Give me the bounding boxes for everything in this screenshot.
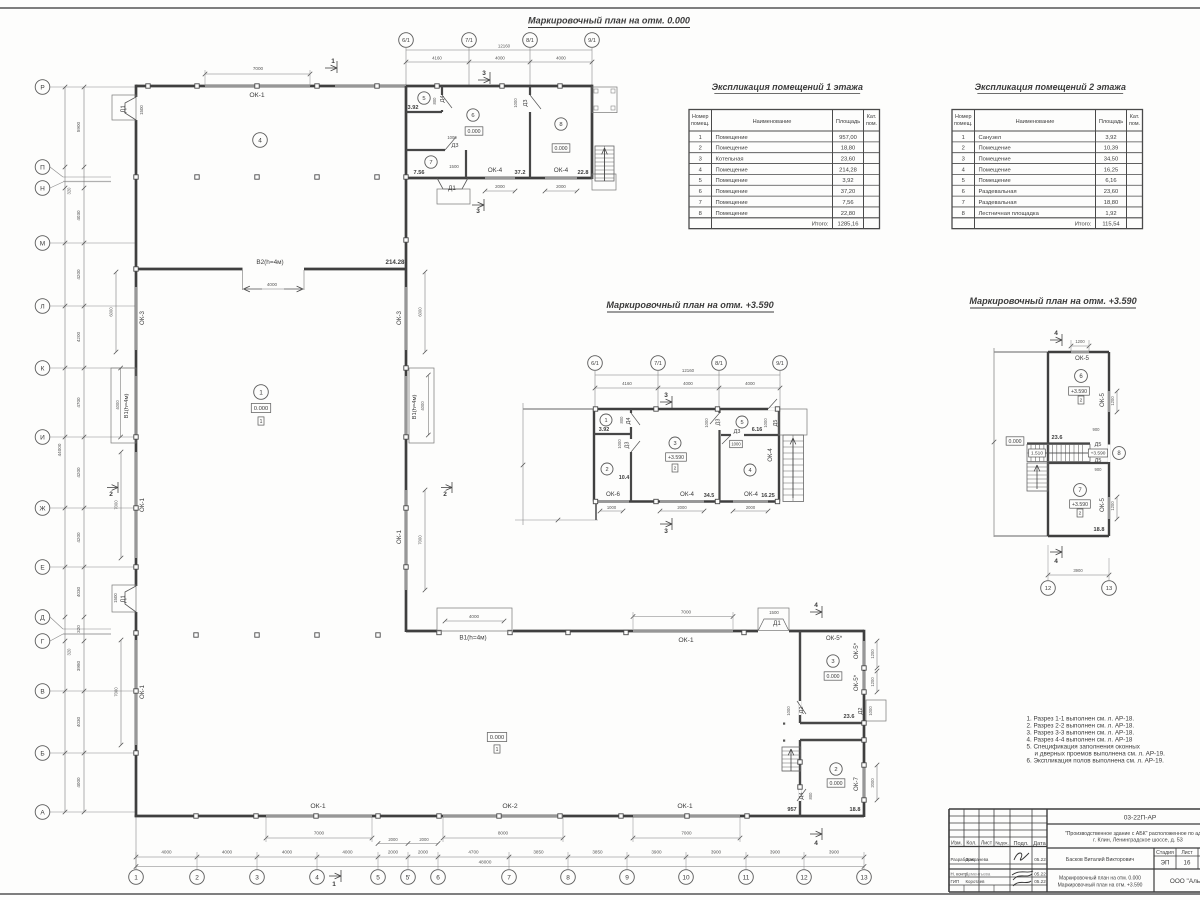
svg-text:1000: 1000 — [731, 442, 741, 447]
svg-text:1000: 1000 — [704, 418, 709, 428]
svg-text:Г: Г — [41, 638, 45, 645]
svg-text:Д1: Д1 — [120, 105, 127, 113]
svg-text:2000: 2000 — [870, 778, 875, 788]
svg-text:И: И — [40, 434, 45, 441]
svg-text:7000: 7000 — [253, 66, 264, 71]
svg-text:В1(h=4м): В1(h=4м) — [124, 394, 130, 419]
svg-text:0.000: 0.000 — [468, 129, 481, 135]
svg-text:Д5: Д5 — [1095, 458, 1102, 464]
svg-text:пом.: пом. — [866, 121, 877, 127]
svg-text:3850: 3850 — [592, 850, 603, 855]
svg-text:ОК-5*: ОК-5* — [853, 674, 860, 691]
svg-text:ООО "Аль: ООО "Аль — [1170, 878, 1200, 885]
svg-text:4000: 4000 — [495, 56, 505, 61]
svg-text:4: 4 — [1054, 558, 1058, 565]
svg-text:6,16: 6,16 — [1105, 178, 1116, 184]
svg-text:34,50: 34,50 — [1104, 157, 1119, 163]
svg-text:ОК-5*: ОК-5* — [826, 635, 843, 642]
svg-text:помещ.: помещ. — [691, 121, 710, 127]
svg-text:4200: 4200 — [76, 467, 81, 478]
svg-text:ОК-5*: ОК-5* — [853, 642, 860, 659]
svg-text:5: 5 — [962, 178, 965, 184]
svg-text:5: 5 — [740, 420, 743, 426]
svg-text:Дожранева: Дожранева — [966, 857, 989, 862]
svg-text:ОК-4: ОК-4 — [680, 491, 694, 498]
svg-text:5: 5 — [422, 96, 425, 102]
svg-text:6000: 6000 — [109, 307, 114, 317]
svg-text:ОК-1: ОК-1 — [678, 637, 694, 644]
svg-text:5900: 5900 — [76, 121, 81, 132]
svg-text:8: 8 — [699, 211, 702, 217]
svg-text:ОК-4: ОК-4 — [554, 167, 569, 174]
svg-text:4700: 4700 — [76, 397, 81, 408]
svg-text:Д1: Д1 — [120, 595, 127, 603]
svg-text:11: 11 — [743, 874, 750, 881]
svg-text:Маркировочный план на отм. +3.: Маркировочный план на отм. +3.590 — [606, 300, 773, 310]
svg-text:13: 13 — [860, 874, 868, 881]
svg-text:Лист: Лист — [981, 841, 993, 847]
svg-text:3: 3 — [664, 392, 668, 399]
svg-text:1500: 1500 — [113, 593, 118, 603]
svg-text:8: 8 — [962, 211, 965, 217]
svg-text:2: 2 — [605, 467, 608, 473]
svg-text:10,39: 10,39 — [1104, 146, 1119, 152]
svg-text:Итого:: Итого: — [812, 222, 829, 228]
svg-text:4000: 4000 — [282, 850, 293, 855]
svg-text:0.000: 0.000 — [827, 674, 840, 680]
svg-text:4000: 4000 — [76, 777, 81, 788]
svg-text:0.000: 0.000 — [830, 781, 843, 787]
svg-text:18,80: 18,80 — [1104, 200, 1119, 206]
svg-text:18.8: 18.8 — [1094, 527, 1105, 533]
svg-text:3900: 3900 — [1073, 568, 1083, 573]
svg-text:Наименование: Наименование — [753, 119, 792, 125]
svg-text:Д4: Д4 — [626, 418, 632, 425]
svg-text:А: А — [40, 809, 45, 816]
svg-text:4200: 4200 — [76, 269, 81, 280]
svg-text:4000: 4000 — [745, 381, 755, 386]
svg-text:12160: 12160 — [498, 44, 511, 49]
svg-text:1000: 1000 — [447, 135, 457, 140]
svg-text:П: П — [40, 164, 45, 171]
svg-text:ЭП: ЭП — [1161, 860, 1170, 867]
svg-text:Д3: Д3 — [716, 419, 722, 426]
svg-text:1000: 1000 — [868, 706, 873, 716]
svg-text:+3.590: +3.590 — [1091, 451, 1106, 457]
svg-text:8: 8 — [559, 122, 562, 128]
svg-text:2: 2 — [109, 491, 113, 498]
svg-text:3: 3 — [482, 70, 486, 77]
svg-text:4. Разрез 4-4 выполнен см. л.: 4. Разрез 4-4 выполнен см. л. АР-18 — [1027, 736, 1133, 743]
svg-text:Помещение: Помещение — [979, 146, 1011, 152]
svg-text:37,20: 37,20 — [841, 189, 856, 195]
svg-text:Басков Виталий Викторович: Басков Виталий Викторович — [1066, 856, 1134, 863]
svg-text:2: 2 — [962, 146, 965, 152]
svg-text:1: 1 — [496, 747, 499, 753]
svg-text:ОК-3: ОК-3 — [139, 310, 146, 324]
svg-text:Д3: Д3 — [734, 429, 741, 435]
svg-text:ОК-1: ОК-1 — [139, 497, 146, 511]
svg-text:1200: 1200 — [870, 677, 875, 687]
svg-text:2: 2 — [834, 767, 837, 773]
svg-text:Д4: Д4 — [799, 793, 805, 800]
svg-text:4030: 4030 — [76, 586, 81, 597]
svg-text:957: 957 — [787, 807, 796, 813]
svg-text:3: 3 — [699, 157, 702, 163]
svg-text:1000: 1000 — [786, 706, 791, 716]
svg-text:Д: Д — [40, 614, 45, 621]
svg-text:1500: 1500 — [449, 164, 459, 169]
svg-text:Помещение: Помещение — [716, 135, 748, 141]
svg-text:6: 6 — [436, 874, 440, 881]
svg-text:9: 9 — [625, 874, 629, 881]
svg-text:7,56: 7,56 — [842, 200, 853, 206]
svg-text:2000: 2000 — [556, 184, 566, 189]
svg-text:05.22: 05.22 — [1034, 872, 1046, 877]
svg-text:8: 8 — [566, 874, 570, 881]
svg-text:1: 1 — [604, 418, 607, 424]
svg-text:3980: 3980 — [76, 660, 81, 671]
svg-text:05.22: 05.22 — [1034, 857, 1046, 862]
svg-text:1: 1 — [260, 419, 263, 425]
svg-text:9/1: 9/1 — [776, 361, 784, 367]
svg-text:03-22П-АР: 03-22П-АР — [1124, 815, 1157, 822]
svg-text:Помещение: Помещение — [716, 189, 748, 195]
svg-text:4: 4 — [699, 167, 703, 173]
svg-text:ОК-1: ОК-1 — [396, 529, 403, 543]
svg-text:4000: 4000 — [342, 850, 353, 855]
svg-text:2: 2 — [674, 466, 677, 472]
svg-text:4: 4 — [1054, 330, 1058, 337]
svg-text:+3.590: +3.590 — [1071, 389, 1087, 395]
svg-text:2000: 2000 — [388, 850, 399, 855]
svg-text:22,80: 22,80 — [841, 211, 856, 217]
svg-text:4200: 4200 — [76, 331, 81, 342]
svg-text:Наименование: Наименование — [1016, 119, 1055, 125]
svg-text:Кат.: Кат. — [867, 114, 876, 120]
svg-text:Кол.: Кол. — [966, 841, 976, 847]
svg-text:7000: 7000 — [114, 500, 119, 510]
svg-text:2000: 2000 — [419, 837, 429, 842]
svg-text:Маркировочный план на отм. 0.0: Маркировочный план на отм. 0.000 — [1059, 875, 1141, 882]
svg-text:+3.590: +3.590 — [668, 455, 684, 461]
svg-text:ОК-6: ОК-6 — [606, 491, 620, 498]
svg-text:помещ.: помещ. — [954, 121, 973, 127]
svg-text:+3.590: +3.590 — [1072, 502, 1088, 508]
svg-text:34.5: 34.5 — [704, 493, 715, 499]
svg-text:4700: 4700 — [468, 850, 479, 855]
svg-text:3,92: 3,92 — [842, 178, 853, 184]
svg-text:Р: Р — [40, 84, 44, 91]
svg-text:1: 1 — [259, 389, 263, 396]
svg-text:Д2: Д2 — [858, 708, 864, 715]
svg-text:7000: 7000 — [418, 535, 423, 545]
svg-text:Коротаев: Коротаев — [966, 879, 986, 884]
svg-text:Помещение: Помещение — [716, 178, 748, 184]
svg-text:214,28: 214,28 — [839, 167, 857, 173]
svg-text:г. Клин, Ленинградское шоссе,: г. Клин, Ленинградское шоссе, д. 53 — [1093, 838, 1183, 844]
svg-text:Д5: Д5 — [1095, 442, 1102, 448]
svg-text:ОК-1: ОК-1 — [139, 684, 146, 698]
svg-text:1200: 1200 — [1110, 501, 1115, 511]
svg-text:900: 900 — [1093, 427, 1101, 432]
svg-text:2: 2 — [699, 146, 702, 152]
svg-text:ОК-5: ОК-5 — [1099, 497, 1106, 511]
svg-text:2000: 2000 — [746, 505, 756, 510]
svg-text:957,00: 957,00 — [839, 135, 857, 141]
svg-text:Д2: Д2 — [799, 707, 805, 714]
svg-text:3: 3 — [831, 659, 834, 665]
svg-text:1,92: 1,92 — [1105, 211, 1116, 217]
svg-text:7: 7 — [962, 200, 965, 206]
svg-text:Помещение: Помещение — [716, 167, 748, 173]
svg-text:и дверных проемов выполнена см: и дверных проемов выполнена см. л. АР-19… — [1035, 751, 1166, 758]
svg-text:16: 16 — [1184, 860, 1191, 867]
svg-text:Маркировочный план на отм. 0.0: Маркировочный план на отм. 0.000 — [528, 16, 690, 26]
svg-text:16.25: 16.25 — [761, 493, 775, 499]
svg-text:3900: 3900 — [711, 850, 722, 855]
svg-text:5. Спецификация заполнения око: 5. Спецификация заполнения оконных — [1027, 744, 1141, 751]
svg-text:320: 320 — [76, 625, 81, 633]
svg-text:Раздевальная: Раздевальная — [979, 200, 1017, 206]
svg-text:320: 320 — [67, 187, 72, 195]
svg-text:4000: 4000 — [267, 282, 278, 287]
svg-text:ГИП: ГИП — [951, 879, 960, 884]
svg-text:6. Экспликация полов выполнена: 6. Экспликация полов выполнена см. л. АР… — [1027, 758, 1165, 765]
svg-text:Лестничная площадка: Лестничная площадка — [979, 211, 1040, 217]
svg-text:2: 2 — [443, 491, 447, 498]
svg-text:5': 5' — [406, 874, 411, 881]
svg-text:"Производственное здание с АБК: "Производственное здание с АБК" располож… — [1065, 831, 1200, 837]
svg-text:1200: 1200 — [870, 649, 875, 659]
svg-text:2: 2 — [195, 874, 199, 881]
svg-text:ОК-3: ОК-3 — [396, 310, 403, 324]
svg-text:пом.: пом. — [1129, 121, 1140, 127]
svg-text:Итого:: Итого: — [1075, 222, 1092, 228]
svg-text:Л: Л — [40, 303, 44, 310]
svg-text:Д4: Д4 — [440, 96, 446, 103]
svg-text:Д3: Д3 — [452, 143, 459, 149]
svg-text:4000: 4000 — [469, 614, 480, 619]
svg-text:4: 4 — [814, 602, 818, 609]
svg-text:2. Разрез 2-2 выполнен см. л.: 2. Разрез 2-2 выполнен см. л. АР-18. — [1027, 722, 1135, 729]
svg-text:Подл.: Подл. — [1013, 841, 1029, 847]
svg-text:3: 3 — [476, 208, 480, 215]
svg-text:7000: 7000 — [681, 610, 692, 615]
svg-text:800: 800 — [808, 792, 813, 800]
svg-text:4000: 4000 — [161, 850, 172, 855]
svg-text:3850: 3850 — [533, 850, 544, 855]
svg-text:ОК-4: ОК-4 — [768, 448, 774, 462]
svg-text:6: 6 — [962, 189, 965, 195]
svg-text:К: К — [41, 365, 45, 372]
svg-text:5: 5 — [376, 874, 380, 881]
svg-text:4030: 4030 — [76, 716, 81, 727]
svg-text:Помещение: Помещение — [716, 211, 748, 217]
svg-text:Изм.: Изм. — [951, 841, 962, 847]
svg-text:4160: 4160 — [622, 381, 632, 386]
svg-text:800: 800 — [619, 416, 624, 424]
svg-text:4: 4 — [962, 167, 966, 173]
svg-text:0.000: 0.000 — [555, 146, 568, 152]
svg-text:900: 900 — [1095, 467, 1103, 472]
svg-text:9/1: 9/1 — [588, 38, 596, 44]
svg-text:1: 1 — [134, 874, 138, 881]
svg-text:Помещение: Помещение — [716, 146, 748, 152]
svg-text:13: 13 — [1106, 586, 1112, 592]
svg-text:6/1: 6/1 — [402, 38, 410, 44]
svg-text:4: 4 — [258, 137, 262, 144]
svg-text:В2(h=4м): В2(h=4м) — [256, 259, 283, 266]
svg-text:7: 7 — [699, 200, 702, 206]
svg-text:Д1: Д1 — [448, 185, 456, 192]
svg-text:Маркировочный план на отм. +3.: Маркировочный план на отм. +3.590 — [1058, 882, 1143, 889]
svg-text:Ж: Ж — [39, 505, 45, 512]
svg-text:Помещение: Помещение — [979, 157, 1011, 163]
svg-text:Площадь: Площадь — [1099, 119, 1123, 125]
svg-text:7: 7 — [429, 160, 432, 166]
svg-text:М: М — [40, 240, 45, 247]
svg-text:1.510: 1.510 — [1031, 451, 1043, 457]
svg-text:0.000: 0.000 — [254, 406, 269, 412]
svg-text:4160: 4160 — [432, 56, 442, 61]
svg-text:4030: 4030 — [76, 210, 81, 221]
svg-text:3,92: 3,92 — [1105, 135, 1116, 141]
svg-text:В: В — [40, 688, 44, 695]
svg-text:Б: Б — [40, 750, 44, 757]
svg-text:1000: 1000 — [607, 505, 617, 510]
svg-text:7/1: 7/1 — [654, 361, 662, 367]
svg-text:8000: 8000 — [498, 831, 509, 836]
svg-text:8/1: 8/1 — [715, 361, 723, 367]
svg-text:7000: 7000 — [114, 687, 119, 697]
svg-text:800: 800 — [432, 97, 437, 105]
svg-text:3. Разрез 3-3 выполнен см. л.: 3. Разрез 3-3 выполнен см. л. АР-18. — [1027, 729, 1135, 736]
svg-text:1: 1 — [962, 135, 965, 141]
svg-text:23,60: 23,60 — [841, 157, 856, 163]
svg-text:4000: 4000 — [683, 381, 693, 386]
svg-text:3: 3 — [664, 528, 668, 535]
svg-text:1: 1 — [699, 135, 702, 141]
svg-text:Помещение: Помещение — [979, 178, 1011, 184]
svg-text:1500: 1500 — [139, 105, 144, 115]
svg-text:37.2: 37.2 — [515, 170, 526, 176]
svg-text:2000: 2000 — [677, 505, 687, 510]
svg-text:Номер: Номер — [692, 114, 709, 120]
svg-text:7/1: 7/1 — [465, 38, 473, 44]
svg-text:2000: 2000 — [495, 184, 505, 189]
svg-text:48000: 48000 — [479, 860, 492, 865]
svg-text:4000: 4000 — [556, 56, 566, 61]
svg-text:1000: 1000 — [513, 98, 518, 108]
svg-text:Н: Н — [40, 185, 45, 192]
svg-text:1285,16: 1285,16 — [838, 222, 859, 228]
svg-text:Площадь: Площадь — [836, 119, 860, 125]
svg-text:12: 12 — [800, 874, 808, 881]
svg-text:3.92: 3.92 — [599, 427, 610, 433]
svg-text:7.56: 7.56 — [414, 170, 425, 176]
svg-text:3900: 3900 — [770, 850, 781, 855]
svg-text:2: 2 — [1079, 511, 1082, 517]
svg-text:3900: 3900 — [829, 850, 840, 855]
svg-text:3.92: 3.92 — [408, 105, 419, 111]
svg-text:3: 3 — [673, 441, 676, 447]
svg-text:Номер: Номер — [955, 114, 972, 120]
svg-text:10.4: 10.4 — [619, 475, 630, 481]
svg-text:6.16: 6.16 — [752, 427, 763, 433]
svg-text:ОК-7: ОК-7 — [853, 776, 860, 790]
svg-text:2000: 2000 — [388, 837, 398, 842]
svg-text:6: 6 — [471, 113, 474, 119]
svg-text:Д3: Д3 — [523, 100, 529, 107]
svg-text:4: 4 — [814, 840, 818, 847]
svg-text:7000: 7000 — [681, 831, 692, 836]
svg-text:10: 10 — [682, 874, 690, 881]
svg-text:1: 1 — [331, 58, 335, 65]
svg-text:3: 3 — [962, 157, 965, 163]
svg-text:18,80: 18,80 — [841, 146, 856, 152]
svg-text:7: 7 — [507, 874, 511, 881]
svg-text:6/1: 6/1 — [591, 361, 599, 367]
svg-text:Дементьева: Дементьева — [966, 872, 991, 877]
svg-text:214.28: 214.28 — [386, 259, 405, 266]
svg-text:4000: 4000 — [420, 401, 425, 411]
svg-text:ОК-4: ОК-4 — [488, 167, 503, 174]
svg-text:1200: 1200 — [1075, 339, 1085, 344]
svg-text:Кат.: Кат. — [1130, 114, 1139, 120]
svg-text:№док.: №док. — [995, 841, 1008, 846]
svg-text:ОК-1: ОК-1 — [249, 92, 265, 99]
svg-text:1: 1 — [332, 881, 336, 888]
svg-text:ОК-5: ОК-5 — [1099, 392, 1106, 406]
svg-text:1000: 1000 — [617, 439, 622, 449]
svg-text:Стадия: Стадия — [1156, 850, 1174, 856]
svg-text:Помещение: Помещение — [979, 167, 1011, 173]
svg-text:ОК-2: ОК-2 — [502, 803, 518, 810]
svg-text:Санузел: Санузел — [979, 135, 1002, 141]
svg-text:0.000: 0.000 — [1009, 439, 1022, 445]
svg-text:12: 12 — [1045, 586, 1051, 592]
svg-text:1200: 1200 — [1110, 396, 1115, 406]
svg-text:4000: 4000 — [115, 400, 120, 410]
svg-text:ОК-1: ОК-1 — [310, 803, 326, 810]
svg-text:1. Разрез 1-1 выполнен см. л.: 1. Разрез 1-1 выполнен см. л. АР-18. — [1027, 715, 1135, 722]
svg-text:Лист: Лист — [1181, 850, 1193, 856]
svg-text:12160: 12160 — [682, 368, 695, 373]
svg-text:05.22: 05.22 — [1034, 879, 1046, 884]
svg-text:44000: 44000 — [57, 443, 62, 456]
svg-text:115,54: 115,54 — [1102, 222, 1120, 228]
svg-text:ОК-4: ОК-4 — [744, 491, 758, 498]
svg-text:22.8: 22.8 — [578, 170, 589, 176]
svg-text:Маркировочный план на отм. +3.: Маркировочный план на отм. +3.590 — [969, 296, 1136, 306]
svg-text:2000: 2000 — [418, 850, 429, 855]
svg-text:ОК-1: ОК-1 — [677, 803, 693, 810]
svg-text:Д1: Д1 — [773, 620, 781, 627]
svg-text:8/1: 8/1 — [526, 38, 534, 44]
svg-text:Е: Е — [40, 564, 45, 571]
svg-text:23.6: 23.6 — [844, 714, 855, 720]
svg-text:Помещение: Помещение — [716, 200, 748, 206]
svg-text:7000: 7000 — [314, 831, 325, 836]
svg-text:Дата: Дата — [1033, 841, 1046, 847]
svg-text:23.6: 23.6 — [1052, 435, 1063, 441]
svg-text:Раздевальная: Раздевальная — [979, 189, 1017, 195]
svg-text:320: 320 — [67, 648, 72, 656]
svg-text:Котельная: Котельная — [716, 157, 744, 163]
svg-text:В1(h=4м): В1(h=4м) — [412, 395, 418, 420]
svg-text:5: 5 — [699, 178, 702, 184]
